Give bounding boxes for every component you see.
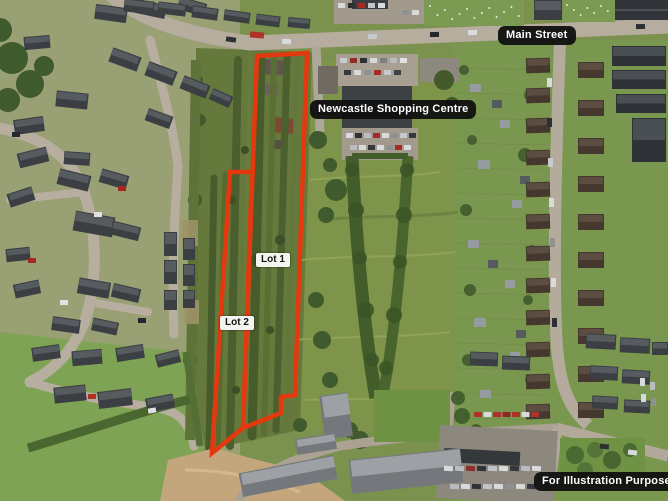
lot-2-boundary [212,172,252,453]
lot-boundaries-overlay [0,0,668,501]
aerial-site-photo: Main Street Newcastle Shopping Centre Lo… [0,0,668,501]
label-main-street: Main Street [498,26,576,45]
lot-1-boundary [243,53,307,428]
label-lot-2: Lot 2 [220,316,254,330]
label-for-illustration-purposes: For Illustration Purposes [534,472,668,491]
label-lot-1: Lot 1 [256,253,290,267]
label-newcastle-shopping-centre: Newcastle Shopping Centre [310,100,476,119]
